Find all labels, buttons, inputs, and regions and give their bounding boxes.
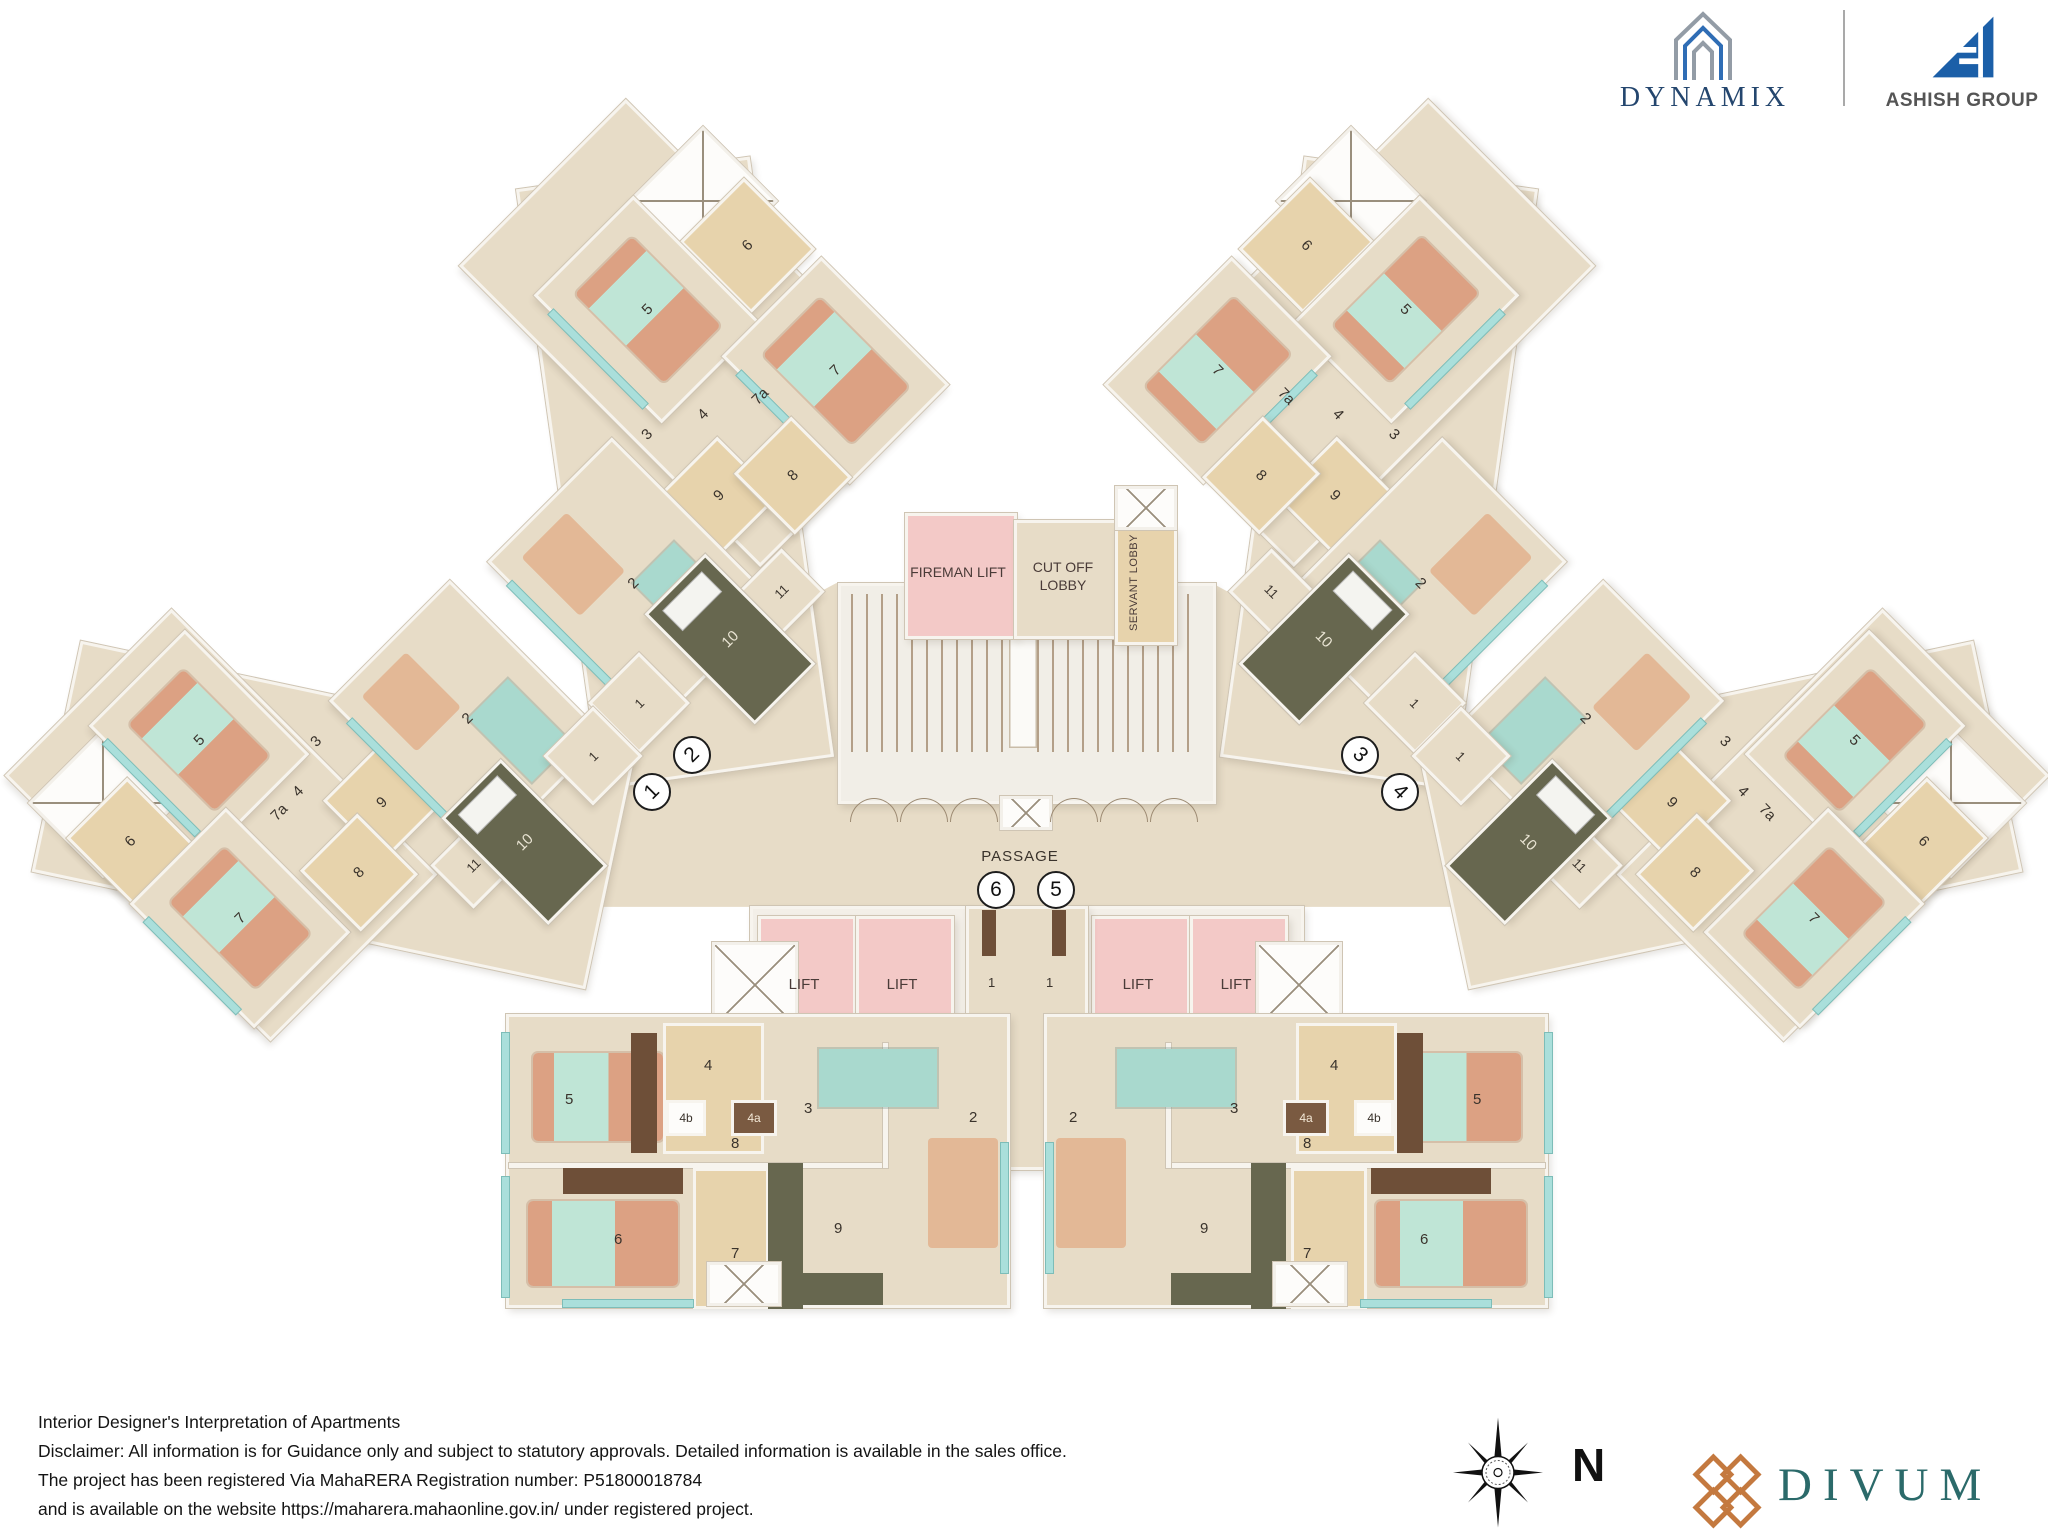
window-strip <box>502 1033 509 1153</box>
shaft-x-icon <box>1115 486 1177 530</box>
window-strip <box>1545 1177 1552 1297</box>
bed <box>1376 1201 1526 1286</box>
apartment-room-small: 4b <box>666 1100 706 1136</box>
apartment-room-small: 4a <box>1283 1100 1329 1136</box>
window-strip <box>502 1177 509 1297</box>
room-number: 4 <box>704 1057 712 1074</box>
passage-label: PASSAGE <box>950 848 1090 865</box>
window-strip <box>1361 1300 1491 1307</box>
footer-disclaimer: Interior Designer's Interpretation of Ap… <box>38 1408 1118 1524</box>
sofa <box>1056 1138 1126 1248</box>
room-number: 8 <box>1303 1135 1311 1152</box>
room-number: 7 <box>731 1245 739 1262</box>
apartment-room-small: 4b <box>1354 1100 1394 1136</box>
room-number: 3 <box>1230 1100 1238 1117</box>
servant-lobby-label: SERVANT LOBBY <box>1128 533 1162 633</box>
room-number: 6 <box>1420 1231 1428 1248</box>
logo-divider <box>1843 10 1845 106</box>
room-number: 4b <box>1357 1103 1391 1133</box>
ashish-group-logo-icon <box>1925 8 2001 86</box>
lift-label: LIFT <box>1190 916 1282 1054</box>
footer-line: Disclaimer: All information is for Guida… <box>38 1437 1118 1466</box>
kitchen-counter <box>768 1273 883 1305</box>
window-strip <box>563 1300 693 1307</box>
wardrobe <box>563 1168 683 1194</box>
window-strip <box>1545 1033 1552 1153</box>
room-number: 7 <box>1303 1245 1311 1262</box>
footer-line: and is available on the website https://… <box>38 1495 1118 1524</box>
compass-rose-icon <box>1448 1416 1548 1534</box>
ashish-group-wordmark: ASHISH GROUP <box>1862 90 2048 112</box>
dynamix-logo-icon <box>1668 6 1738 82</box>
room-number: 4a <box>1286 1103 1326 1133</box>
unit-number: 3 <box>1347 742 1372 767</box>
bed <box>528 1201 678 1286</box>
shaft-x-icon <box>707 1262 781 1306</box>
wardrobe <box>1397 1033 1423 1153</box>
room-number: 2 <box>969 1109 977 1126</box>
kitchen-counter <box>1171 1273 1286 1305</box>
divum-logo-icon <box>1692 1452 1762 1530</box>
lift-label: LIFT <box>758 916 850 1054</box>
room-number: 5 <box>1473 1091 1481 1108</box>
room-number: 6 <box>614 1231 622 1248</box>
fireman-lift-label: FIREMAN LIFT <box>905 513 1011 633</box>
unit-marker: 5 <box>1037 871 1075 909</box>
shaft-x-icon <box>1273 1262 1347 1306</box>
entry-door <box>1052 910 1066 956</box>
window-strip <box>1001 1143 1008 1273</box>
room-number: 2 <box>1069 1109 1077 1126</box>
entry-door <box>982 910 996 956</box>
floor-plan-canvas: 6 5 7 9 8 2 11 10 1 7a 4 3 6 5 7 9 8 2 1… <box>0 0 2048 1538</box>
wardrobe <box>1371 1168 1491 1194</box>
room-number: 5 <box>565 1091 573 1108</box>
room-number: 8 <box>731 1135 739 1152</box>
room-number: 9 <box>834 1220 842 1237</box>
unit-number: 4 <box>1387 779 1412 804</box>
unit-number: 5 <box>1050 878 1062 902</box>
shaft-x-icon <box>1000 796 1052 830</box>
apartment-room-small: 4a <box>731 1100 777 1136</box>
lift-label: LIFT <box>856 916 948 1054</box>
window-strip <box>1046 1143 1053 1273</box>
unit-number: 2 <box>679 742 704 767</box>
cut-off-lobby-label: CUT OFF LOBBY <box>1014 520 1112 633</box>
unit-marker: 6 <box>977 871 1015 909</box>
lift-label: LIFT <box>1092 916 1184 1054</box>
footer-line: Interior Designer's Interpretation of Ap… <box>38 1408 1118 1437</box>
room-number: 3 <box>804 1100 812 1117</box>
dining-table <box>819 1049 937 1107</box>
room-number: 4 <box>1330 1057 1338 1074</box>
sofa <box>928 1138 998 1248</box>
room-number: 1 <box>1046 975 1053 990</box>
dining-table <box>1117 1049 1235 1107</box>
footer-line: The project has been registered Via Maha… <box>38 1466 1118 1495</box>
wardrobe <box>631 1033 657 1153</box>
room-number: 9 <box>1200 1220 1208 1237</box>
north-label: N <box>1572 1438 1605 1492</box>
room-number: 4a <box>734 1103 774 1133</box>
unit-number: 6 <box>990 878 1002 902</box>
divum-wordmark: DIVUM <box>1778 1458 1992 1512</box>
room-number: 1 <box>988 975 995 990</box>
unit-number: 1 <box>639 779 664 804</box>
dynamix-wordmark: DYNAMIX <box>1605 82 1805 114</box>
room-number: 4b <box>669 1103 703 1133</box>
